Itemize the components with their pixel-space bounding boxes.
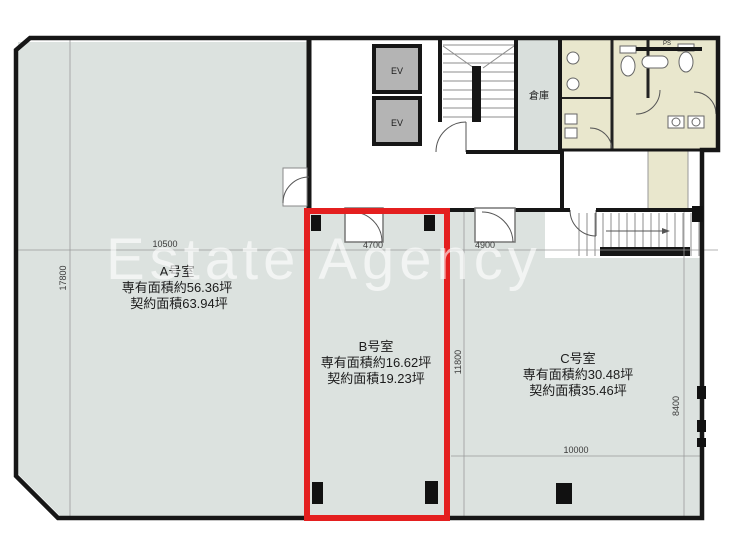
sink-fixture [567, 52, 579, 64]
room-c-exclusive-area: 専有面積約30.48坪 [523, 367, 634, 382]
floorplan-canvas: A号室 専有面積約56.36坪 契約面積63.94坪 B号室 専有面積約16.6… [0, 0, 734, 547]
dim-room-b-width: 4700 [363, 240, 383, 250]
dim-room-c-height: 11800 [453, 350, 463, 374]
sink-fixture [565, 128, 577, 138]
restroom-floor [562, 40, 718, 150]
room-a-contract-area: 契約面積63.94坪 [130, 296, 228, 311]
exterior-stairs [545, 210, 700, 258]
toilet-fixture [679, 52, 693, 72]
room-c-name: C号室 [560, 351, 595, 366]
elevator-2-label: EV [391, 118, 403, 128]
storage-label: 倉庫 [529, 89, 549, 102]
sink-fixture [567, 78, 579, 90]
door-swing [436, 122, 466, 152]
sink-fixture [565, 114, 577, 124]
dim-top-left: 10500 [152, 239, 177, 249]
dim-room-c-width-lower: 10000 [563, 445, 588, 455]
room-a-exclusive-area: 専有面積約56.36坪 [122, 280, 233, 295]
room-a-door [283, 168, 309, 206]
room-b-contract-area: 契約面積19.23坪 [327, 371, 425, 386]
elevator-1-label: EV [391, 66, 403, 76]
room-b-exclusive-area: 専有面積約16.62坪 [321, 355, 432, 370]
toilet-fixture [621, 56, 635, 76]
room-b-name: B号室 [359, 339, 394, 354]
room-c-contract-area: 契約面積35.46坪 [529, 383, 627, 398]
pipe-space-band [636, 47, 702, 51]
room-c-shaft [475, 208, 515, 242]
dim-room-c-width-upper: 4900 [475, 240, 495, 250]
stairwell [436, 44, 514, 152]
room-a-name: A号室 [160, 264, 195, 279]
dim-right-vertical: 8400 [671, 396, 681, 416]
toilet-fixture [620, 46, 636, 53]
restroom-annex-floor [648, 150, 688, 212]
pipe-space-label: PS [663, 41, 671, 47]
dim-left-vertical: 17800 [58, 265, 68, 290]
elevator-shafts [374, 46, 420, 144]
floorplan-drawing: A号室 専有面積約56.36坪 契約面積63.94坪 B号室 専有面積約16.6… [0, 0, 734, 547]
bathtub-fixture [642, 56, 668, 68]
